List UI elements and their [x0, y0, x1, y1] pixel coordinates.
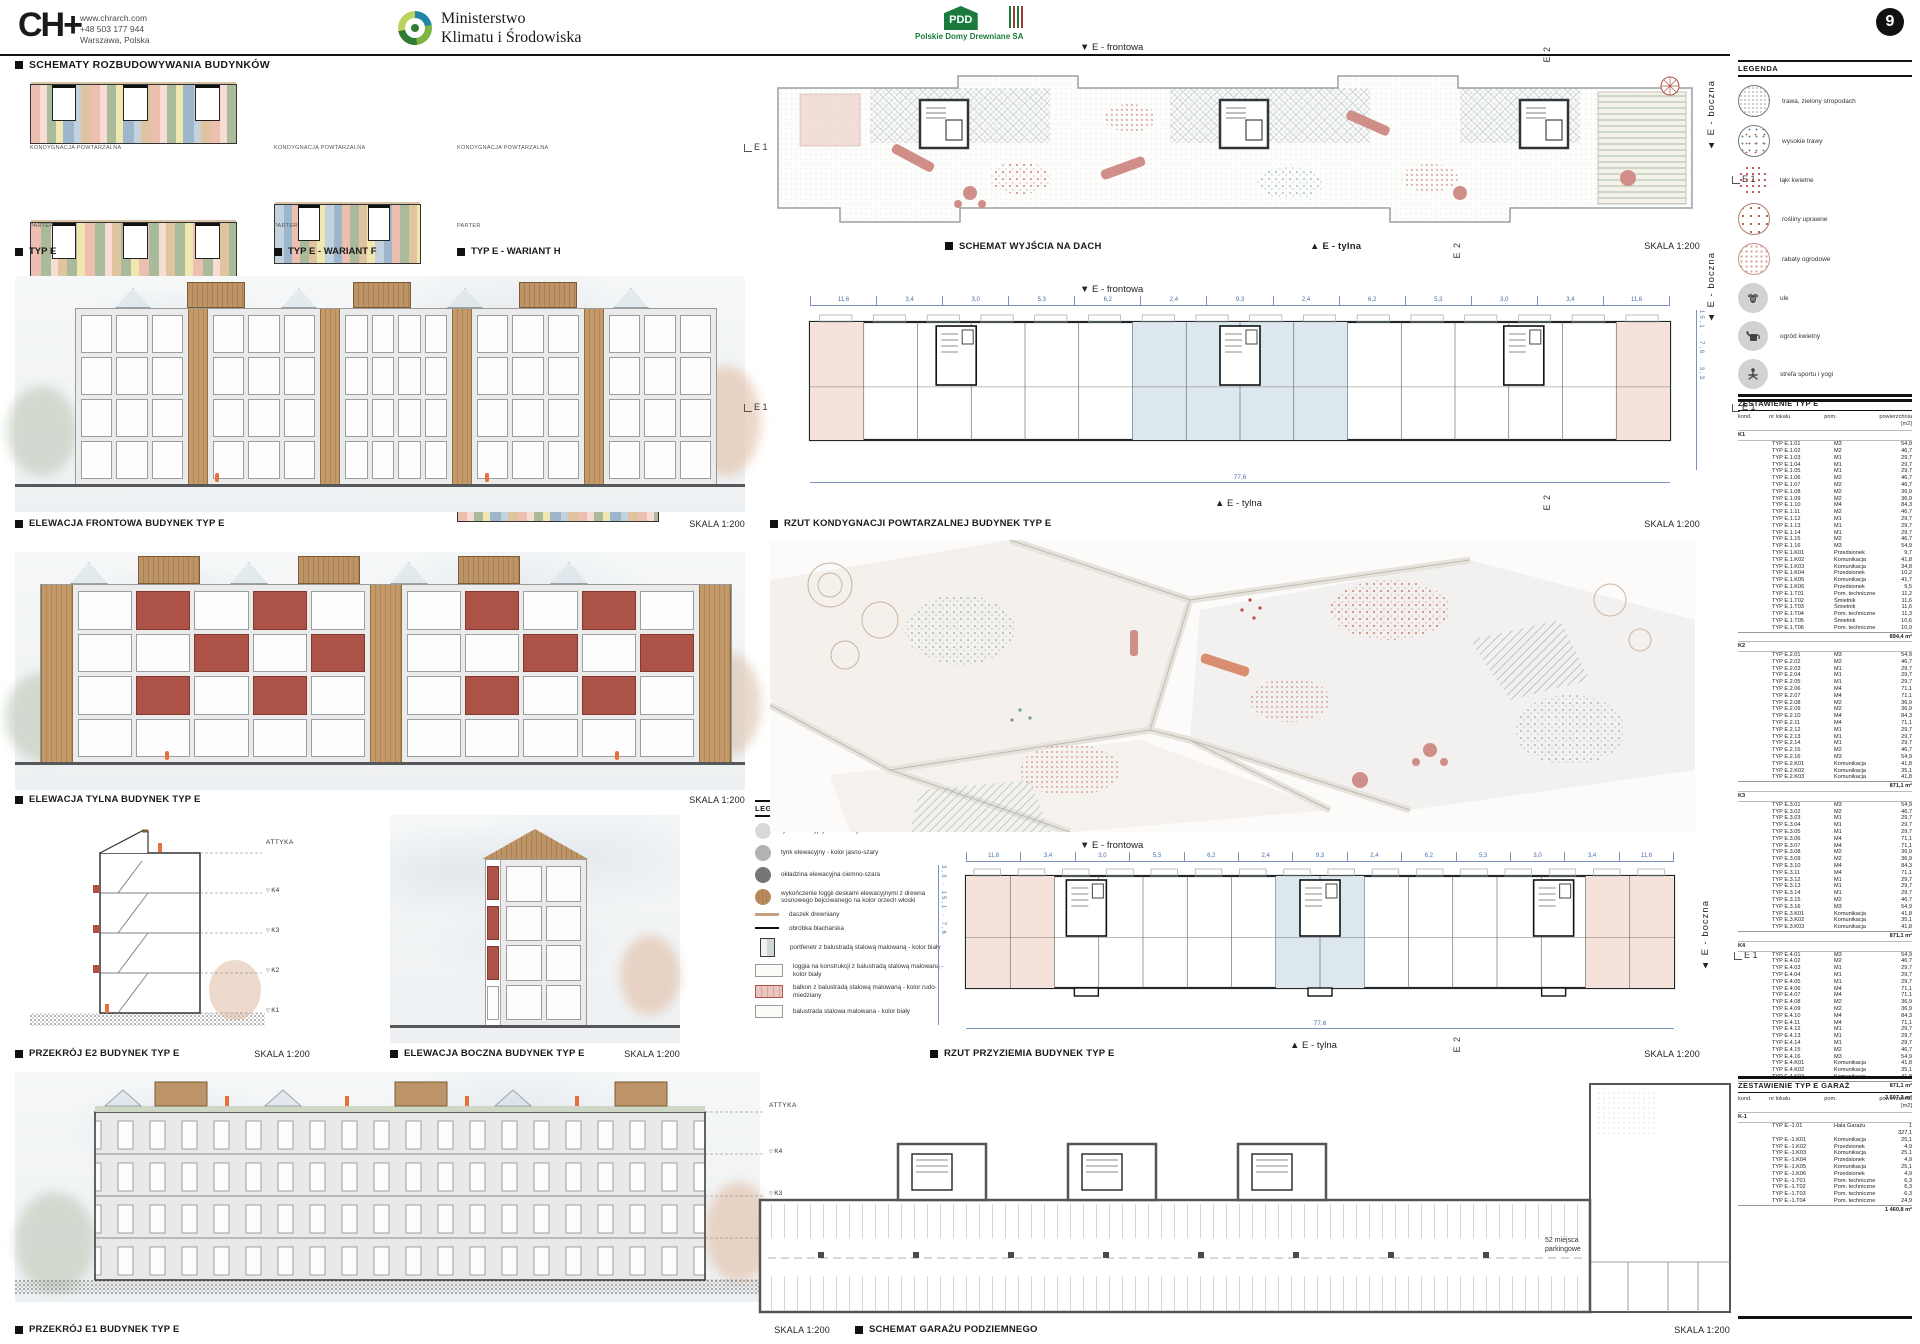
table-row: TYP E.4.01M354,9 [1738, 952, 1912, 959]
dots-red-swatch-icon [1738, 165, 1768, 195]
material-swatch-icon [760, 938, 775, 957]
table-row: TYP E.2.13M129,7 [1738, 734, 1912, 741]
roof-plan-figure [770, 58, 1700, 246]
table-row: TYP E.2.05M129,7 [1738, 679, 1912, 686]
table-row: TYP E.2.09M236,9 [1738, 706, 1912, 713]
table-row: TYP E.2.12M129,7 [1738, 727, 1912, 734]
section-marker-e2: E 2 [1542, 494, 1552, 511]
table-row: TYP E.1.K05Komunikacja41,7 [1738, 577, 1912, 584]
material-swatch-icon [755, 867, 771, 883]
table-row: TYP E.3.K03Komunikacja41,8 [1738, 924, 1912, 931]
table-row: TYP E.2.10M484,3 [1738, 713, 1912, 720]
table-row: TYP E.4.15M246,7 [1738, 1047, 1912, 1054]
table-row: TYP E.-1.K01Komunikacja25,1 [1738, 1137, 1912, 1144]
table-row: TYP E.1.08M236,9 [1738, 489, 1912, 496]
table-row: TYP E.4.12M129,7 [1738, 1026, 1912, 1033]
site-legend-item: wysokie trawy [1738, 125, 1912, 157]
table-row: TYP E.1.06M246,7 [1738, 475, 1912, 482]
material-swatch-icon [755, 913, 779, 916]
table-row: TYP E.2.02M246,7 [1738, 659, 1912, 666]
table-row: TYP E.1.15M246,7 [1738, 536, 1912, 543]
schematic-typ-e-upper [30, 84, 237, 144]
pdd-house-icon: PDD [944, 6, 978, 30]
caption-row-front: ELEWACJA FRONTOWA BUDYNEK TYP E SKALA 1:… [15, 518, 745, 529]
level-label: K3 [266, 927, 279, 934]
table-row: TYP E.-1.T03Pom. techniczne6,3 [1738, 1191, 1912, 1198]
side-elevation-figure [390, 815, 680, 1043]
bullet-square [15, 61, 23, 69]
table-row: TYP E.2.16M354,9 [1738, 754, 1912, 761]
schematic-typ-e-ground [30, 222, 237, 282]
caption-typ-e: TYP E [15, 246, 56, 257]
table-row: TYP E.2.08M236,9 [1738, 700, 1912, 707]
table-row: TYP E.3.10M484,3 [1738, 863, 1912, 870]
vertical-dims: 3,3 · 15,1 · 7,6 [938, 865, 946, 1025]
table-row: TYP E.-1.K04Przedsionek4,9 [1738, 1157, 1912, 1164]
contact-phone: +48 503 177 944 [80, 24, 150, 35]
section-title-schematy: SCHEMATY ROZBUDOWYWANIA BUDYNKÓW [15, 59, 270, 71]
table-row: TYP E.2.14M129,7 [1738, 740, 1912, 747]
attyka-label: ATTYKA [266, 839, 294, 846]
table-row: TYP E.1.16M354,9 [1738, 543, 1912, 550]
sheet-number-badge: 9 [1876, 8, 1904, 36]
table-row: TYP E.3.15M246,7 [1738, 897, 1912, 904]
table-row: TYP E.4.08M236,9 [1738, 999, 1912, 1006]
material-swatch-icon [755, 823, 771, 839]
caption-row-rear: ELEWACJA TYLNA BUDYNEK TYP E SKALA 1:200 [15, 794, 745, 805]
table-row: TYP E.2.K02Komunikacja35,1 [1738, 768, 1912, 775]
icon-can-swatch-icon [1738, 321, 1768, 351]
table-row: TYP E.-1.T04Pom. techniczne24,9 [1738, 1198, 1912, 1205]
caption-row-e2: PRZEKRÓJ E2 BUDYNEK TYP E SKALA 1:200 [15, 1048, 310, 1059]
wood-gable [482, 829, 588, 859]
table-header: kond.nr lokalupom.powierzchnia [m2] [1738, 411, 1912, 431]
level-label: K1 [266, 1007, 279, 1014]
table-row: TYP E.1.T05Śmietnik10,6 [1738, 618, 1912, 625]
table-row: TYP E.3.05M129,7 [1738, 829, 1912, 836]
material-swatch-icon [755, 985, 783, 998]
table-row: TYP E.-1.K02Przedsionek4,9 [1738, 1144, 1912, 1151]
dimension-total: 77,6 [966, 1019, 1674, 1029]
table-row: TYP E.1.T02Śmietnik11,6 [1738, 598, 1912, 605]
table-row: TYP E.1.02M246,7 [1738, 448, 1912, 455]
table-row: TYP E.1.K02Komunikacja41,8 [1738, 557, 1912, 564]
label-e-frontowa: ▼ E - frontowa [1080, 42, 1143, 53]
level-label: K4 [266, 887, 279, 894]
dimension-strip: 11,63,43,05,36,22,49,32,46,25,33,03,411,… [810, 296, 1670, 306]
area-table-typ-e: ZESTAWIENIE TYP Ekond.nr lokalupom.powie… [1738, 394, 1912, 1103]
table-row: TYP E.3.12M129,7 [1738, 877, 1912, 884]
site-legend-items: trawa, zielony stropodachwysokie trawyłą… [1738, 85, 1912, 389]
section-marker-e2: E 2 [1542, 46, 1552, 63]
table-row: TYP E.4.16M354,9 [1738, 1054, 1912, 1061]
table-row: TYP E.3.02M246,7 [1738, 809, 1912, 816]
material-swatch-icon [755, 889, 771, 905]
table-row: TYP E.4.09M236,9 [1738, 1006, 1912, 1013]
dots-fine-swatch-icon [1738, 85, 1770, 117]
dots-mix-swatch-icon [1738, 125, 1770, 157]
right-column-closing-rule [1738, 1316, 1912, 1319]
dots-red-c-swatch-icon [1738, 203, 1770, 235]
table-row: TYP E.3.06M471,1 [1738, 836, 1912, 843]
label-e-frontowa: ▼ E - frontowa [1080, 840, 1143, 851]
pdd-logo: PDD Polskie Domy Drewniane SA [915, 6, 1023, 41]
label-e-boczna: ▲ E - boczna [1700, 900, 1711, 971]
site-legend-item: łąki kwietne [1738, 165, 1912, 195]
level-label: K2 [266, 967, 279, 974]
table-row: TYP E.4.11M471,1 [1738, 1020, 1912, 1027]
table-row: TYP E.1.T04Pom. techniczne11,3 [1738, 611, 1912, 618]
label-e-tylna: ▲ E - tylna [1310, 241, 1361, 252]
section-marker-e1: E 1 [744, 142, 768, 152]
site-plan-drawing [770, 540, 1695, 832]
schematic-label: KONDYGNACJA POWTARZALNA [457, 145, 548, 151]
site-legend-item: rabaty ogrodowe [1738, 243, 1912, 275]
table-row: TYP E.3.04M129,7 [1738, 822, 1912, 829]
caption-row-e1: PRZEKRÓJ E1 BUDYNEK TYP E SKALA 1:200 [15, 1324, 830, 1335]
typical-floor-plan-drawing [790, 308, 1690, 468]
label-e-frontowa: ▼ E - frontowa [1080, 284, 1143, 295]
roof-plan-drawing [770, 58, 1700, 246]
materials-legend-items: tynk elewacyjny - kolor białytynk elewac… [755, 823, 945, 1018]
schematic-label: PARTER [274, 223, 298, 229]
table-subtotal: 871,1 m² [1738, 931, 1912, 941]
table-row: TYP E.4.02M246,7 [1738, 958, 1912, 965]
table-row: TYP E.1.03M129,7 [1738, 455, 1912, 462]
site-legend-item: strefa sportu i yogi [1738, 359, 1912, 389]
contact-block: www.chrarch.com +48 503 177 944 Warszawa… [80, 13, 150, 46]
materials-legend-item: portfenetr z balustradą stalową malowaną… [755, 938, 945, 957]
materials-legend-item: daszek drewniany [755, 911, 945, 919]
table-row: TYP E.2.07M471,1 [1738, 693, 1912, 700]
materials-legend-item: obróbka blacharska [755, 925, 945, 933]
caption-row-side: ELEWACJA BOCZNA BUDYNEK TYP E SKALA 1:20… [390, 1048, 680, 1059]
table-row: TYP E.3.K02Komunikacja35,1 [1738, 917, 1912, 924]
contact-city: Warszawa, Polska [80, 35, 150, 46]
table-row: TYP E.3.14M129,7 [1738, 890, 1912, 897]
site-legend-title: LEGENDA [1738, 60, 1912, 77]
site-legend-item: trawa, zielony stropodach [1738, 85, 1912, 117]
pdd-name: Polskie Domy Drewniane SA [915, 32, 1023, 41]
table-row: TYP E.1.01M354,9 [1738, 441, 1912, 448]
dimension-strip: 11,63,43,05,36,22,49,32,46,25,33,03,411,… [966, 852, 1674, 862]
ministry-name: Ministerstwo Klimatu i Środowiska [441, 9, 581, 47]
table-row: TYP E.2.01M354,9 [1738, 652, 1912, 659]
caption-wariant-f: TYP E - WARIANT F [274, 246, 377, 257]
table-row: TYP E.4.14M129,7 [1738, 1040, 1912, 1047]
header-rule [0, 54, 1730, 56]
vertical-dims: 15,1 · 7,6 · 3,3 [1696, 310, 1704, 470]
table-row: TYP E.4.13M129,7 [1738, 1033, 1912, 1040]
table-row: TYP E.2.04M129,7 [1738, 672, 1912, 679]
table-row: TYP E.1.07M246,7 [1738, 482, 1912, 489]
table-row: TYP E.3.03M129,7 [1738, 815, 1912, 822]
ground-floor-plan-drawing [950, 864, 1690, 1014]
site-plan-figure [770, 540, 1695, 832]
table-row: TYP E.-1.K06Przedsionek4,9 [1738, 1171, 1912, 1178]
site-legend-item: ogród kwietny [1738, 321, 1912, 351]
table-subtotal: 1 460,8 m² [1738, 1205, 1912, 1215]
rear-elevation-figure [15, 552, 745, 790]
table-row: TYP E.3.09M236,9 [1738, 856, 1912, 863]
table-row: TYP E.1.K01Przedsionek9,7 [1738, 550, 1912, 557]
table-row: TYP E.1.11M246,7 [1738, 509, 1912, 516]
table-subtotal: 871,1 m² [1738, 781, 1912, 791]
table-row: TYP E.3.13M129,7 [1738, 883, 1912, 890]
dots-pink-swatch-icon [1738, 243, 1770, 275]
table-row: TYP E.1.14M129,7 [1738, 530, 1912, 537]
table-row: TYP E.1.12M129,7 [1738, 516, 1912, 523]
table-row: TYP E.4.K01Komunikacja41,8 [1738, 1060, 1912, 1067]
table-row: TYP E.4.03M129,7 [1738, 965, 1912, 972]
schematic-label: KONDYGNACJA POWTARZALNA [30, 145, 121, 151]
table-row: TYP E.3.01M354,9 [1738, 802, 1912, 809]
table-group-label: K1 [1738, 430, 1912, 441]
schematic-label: PARTER [457, 223, 481, 229]
ministry-logo: Ministerstwo Klimatu i Środowiska [398, 9, 581, 47]
label-e-tylna: ▲ E - tylna [1215, 498, 1262, 509]
section-marker-e2: E 2 [1452, 1036, 1462, 1053]
table-row: TYP E.4.10M484,3 [1738, 1013, 1912, 1020]
table-group-label: K3 [1738, 791, 1912, 802]
caption-wariant-h: TYP E - WARIANT H [457, 246, 561, 257]
table-row: TYP E.-1.T02Pom. techniczne6,3 [1738, 1184, 1912, 1191]
table-row: TYP E.1.T06Pom. techniczne10,9 [1738, 625, 1912, 632]
site-legend: LEGENDA trawa, zielony stropodachwysokie… [1738, 60, 1912, 402]
table-row: TYP E.2.15M246,7 [1738, 747, 1912, 754]
architectural-board: CH+ www.chrarch.com +48 503 177 944 Wars… [0, 0, 1920, 1344]
table-row: TYP E.-1.K05Komunikacja25,1 [1738, 1164, 1912, 1171]
section-e1-figure: ATTYKA K4 K3 K2 K1 [15, 1072, 815, 1320]
table-row: TYP E.1.05M129,7 [1738, 468, 1912, 475]
table-group-label: K2 [1738, 641, 1912, 652]
section-e1-drawing [15, 1072, 815, 1312]
site-legend-item: rośliny uprawne [1738, 203, 1912, 235]
table-row: TYP E.4.05M129,7 [1738, 979, 1912, 986]
table-row: TYP E.1.10M484,3 [1738, 502, 1912, 509]
table-row: TYP E.1.T03Śmietnik11,6 [1738, 604, 1912, 611]
table-row: TYP E.2.K01Komunikacja41,8 [1738, 761, 1912, 768]
front-elevation-figure [15, 276, 745, 512]
schematic-label: KONDYGNACJA POWTARZALNA [274, 145, 365, 151]
pdd-stripes-icon [1009, 6, 1023, 28]
garage-plan-drawing [758, 1082, 1733, 1314]
table-row: TYP E.2.K03Komunikacja41,8 [1738, 774, 1912, 781]
caption-row-ground-plan: RZUT PRZYZIEMIA BUDYNEK TYP E SKALA 1:20… [930, 1048, 1700, 1059]
garage-note: 52 miejsca parkingowe [1545, 1236, 1581, 1254]
table-row: TYP E.3.07M471,1 [1738, 843, 1912, 850]
table-row: TYP E.2.03M129,7 [1738, 666, 1912, 673]
schematic-label: PARTER [30, 223, 54, 229]
ministry-swirl-icon [398, 11, 432, 45]
table-subtotal: 894,4 m² [1738, 632, 1912, 642]
front-facade [75, 308, 717, 486]
table-row: TYP E.4.07M471,1 [1738, 992, 1912, 999]
table-group-label: K-1 [1738, 1112, 1912, 1123]
table-title: ZESTAWIENIE TYP E GARAŻ [1738, 1081, 1912, 1092]
materials-legend-item: balustrada stalowa malowana - kolor biał… [755, 1005, 945, 1018]
dimension-total: 77,6 [810, 473, 1670, 483]
table-header: kond.nr lokalupom.powierzchnia [m2] [1738, 1093, 1912, 1113]
table-row: TYP E.4.K02Komunikacja35,1 [1738, 1067, 1912, 1074]
table-row: TYP E.1.09M236,9 [1738, 496, 1912, 503]
garage-plan-figure [758, 1082, 1733, 1314]
materials-legend-item: wykończenie loggii deskami elewacyjnymi … [755, 889, 945, 905]
table-row: TYP E.1.13M129,7 [1738, 523, 1912, 530]
caption-row-garage: SCHEMAT GARAŻU PODZIEMNEGO SKALA 1:200 [855, 1324, 1730, 1335]
materials-legend-item: balkon z balustradą stalową malowaną - k… [755, 984, 945, 999]
table-row: TYP E.1.K04Przedsionek10,2 [1738, 570, 1912, 577]
table-row: TYP E.1.04M129,7 [1738, 462, 1912, 469]
table-group-label: K4 [1738, 941, 1912, 952]
table-row: TYP E.3.11M471,1 [1738, 870, 1912, 877]
chplus-logo: CH+ [18, 8, 81, 42]
table-row: TYP E.-1.01Hala Garażu1 327,1 [1738, 1123, 1912, 1137]
materials-legend-item: loggia na konstrukcji z balustradą stalo… [755, 963, 945, 978]
contact-website: www.chrarch.com [80, 13, 150, 24]
table-row: TYP E.2.06M471,1 [1738, 686, 1912, 693]
section-e2-drawing [30, 815, 300, 1043]
materials-legend-item: okładzina elewacyjna ciemno-szara [755, 867, 945, 883]
section-e2-figure: ATTYKA K4 K3 K2 K1 [30, 815, 300, 1043]
table-row: TYP E.3.08M236,9 [1738, 849, 1912, 856]
table-row: TYP E.4.06M471,1 [1738, 986, 1912, 993]
table-row: TYP E.2.11M471,1 [1738, 720, 1912, 727]
material-swatch-icon [755, 845, 771, 861]
table-row: TYP E.1.K06Przedsionek9,5 [1738, 584, 1912, 591]
icon-yoga-swatch-icon [1738, 359, 1768, 389]
area-table-garage: ZESTAWIENIE TYP E GARAŻkond.nr lokalupom… [1738, 1076, 1912, 1215]
table-row: TYP E.-1.K03Komunikacja25,1 [1738, 1150, 1912, 1157]
table-row: TYP E.4.04M129,7 [1738, 972, 1912, 979]
section-marker-e2: E 2 [1452, 242, 1462, 259]
material-swatch-icon [755, 1005, 783, 1018]
caption-row-typical-plan: RZUT KONDYGNACJI POWTARZALNEJ BUDYNEK TY… [770, 518, 1700, 529]
typical-floor-plan-figure: 11,63,43,05,36,22,49,32,46,25,33,03,411,… [790, 296, 1690, 496]
ground-floor-plan-figure: 11,63,43,05,36,22,49,32,46,25,33,03,411,… [950, 852, 1690, 1042]
table-row: TYP E.1.T01Pom. techniczne11,2 [1738, 591, 1912, 598]
label-e-boczna: ▲ E - boczna [1706, 80, 1717, 151]
label-e-boczna: ▲ E - boczna [1706, 252, 1717, 323]
table-row: TYP E.-1.T01Pom. techniczne6,3 [1738, 1178, 1912, 1185]
section-marker-e1: E 1 [744, 402, 768, 412]
table-row: TYP E.1.K03Komunikacja34,8 [1738, 564, 1912, 571]
materials-legend-item: tynk elewacyjny - kolor jasno-szary [755, 845, 945, 861]
wood-strip [188, 309, 208, 485]
material-swatch-icon [755, 964, 783, 977]
table-row: TYP E.3.K01Komunikacja41,8 [1738, 911, 1912, 918]
rooftop-box [187, 282, 245, 308]
table-row: TYP E.3.16M354,9 [1738, 904, 1912, 911]
site-legend-item: ule [1738, 283, 1912, 313]
table-title: ZESTAWIENIE TYP E [1738, 399, 1912, 410]
icon-bee-swatch-icon [1738, 283, 1768, 313]
materials-legend: LEGENDA tynk elewacyjny - kolor białytyn… [755, 800, 945, 1018]
material-swatch-icon [755, 927, 779, 929]
rear-facade [40, 584, 732, 764]
